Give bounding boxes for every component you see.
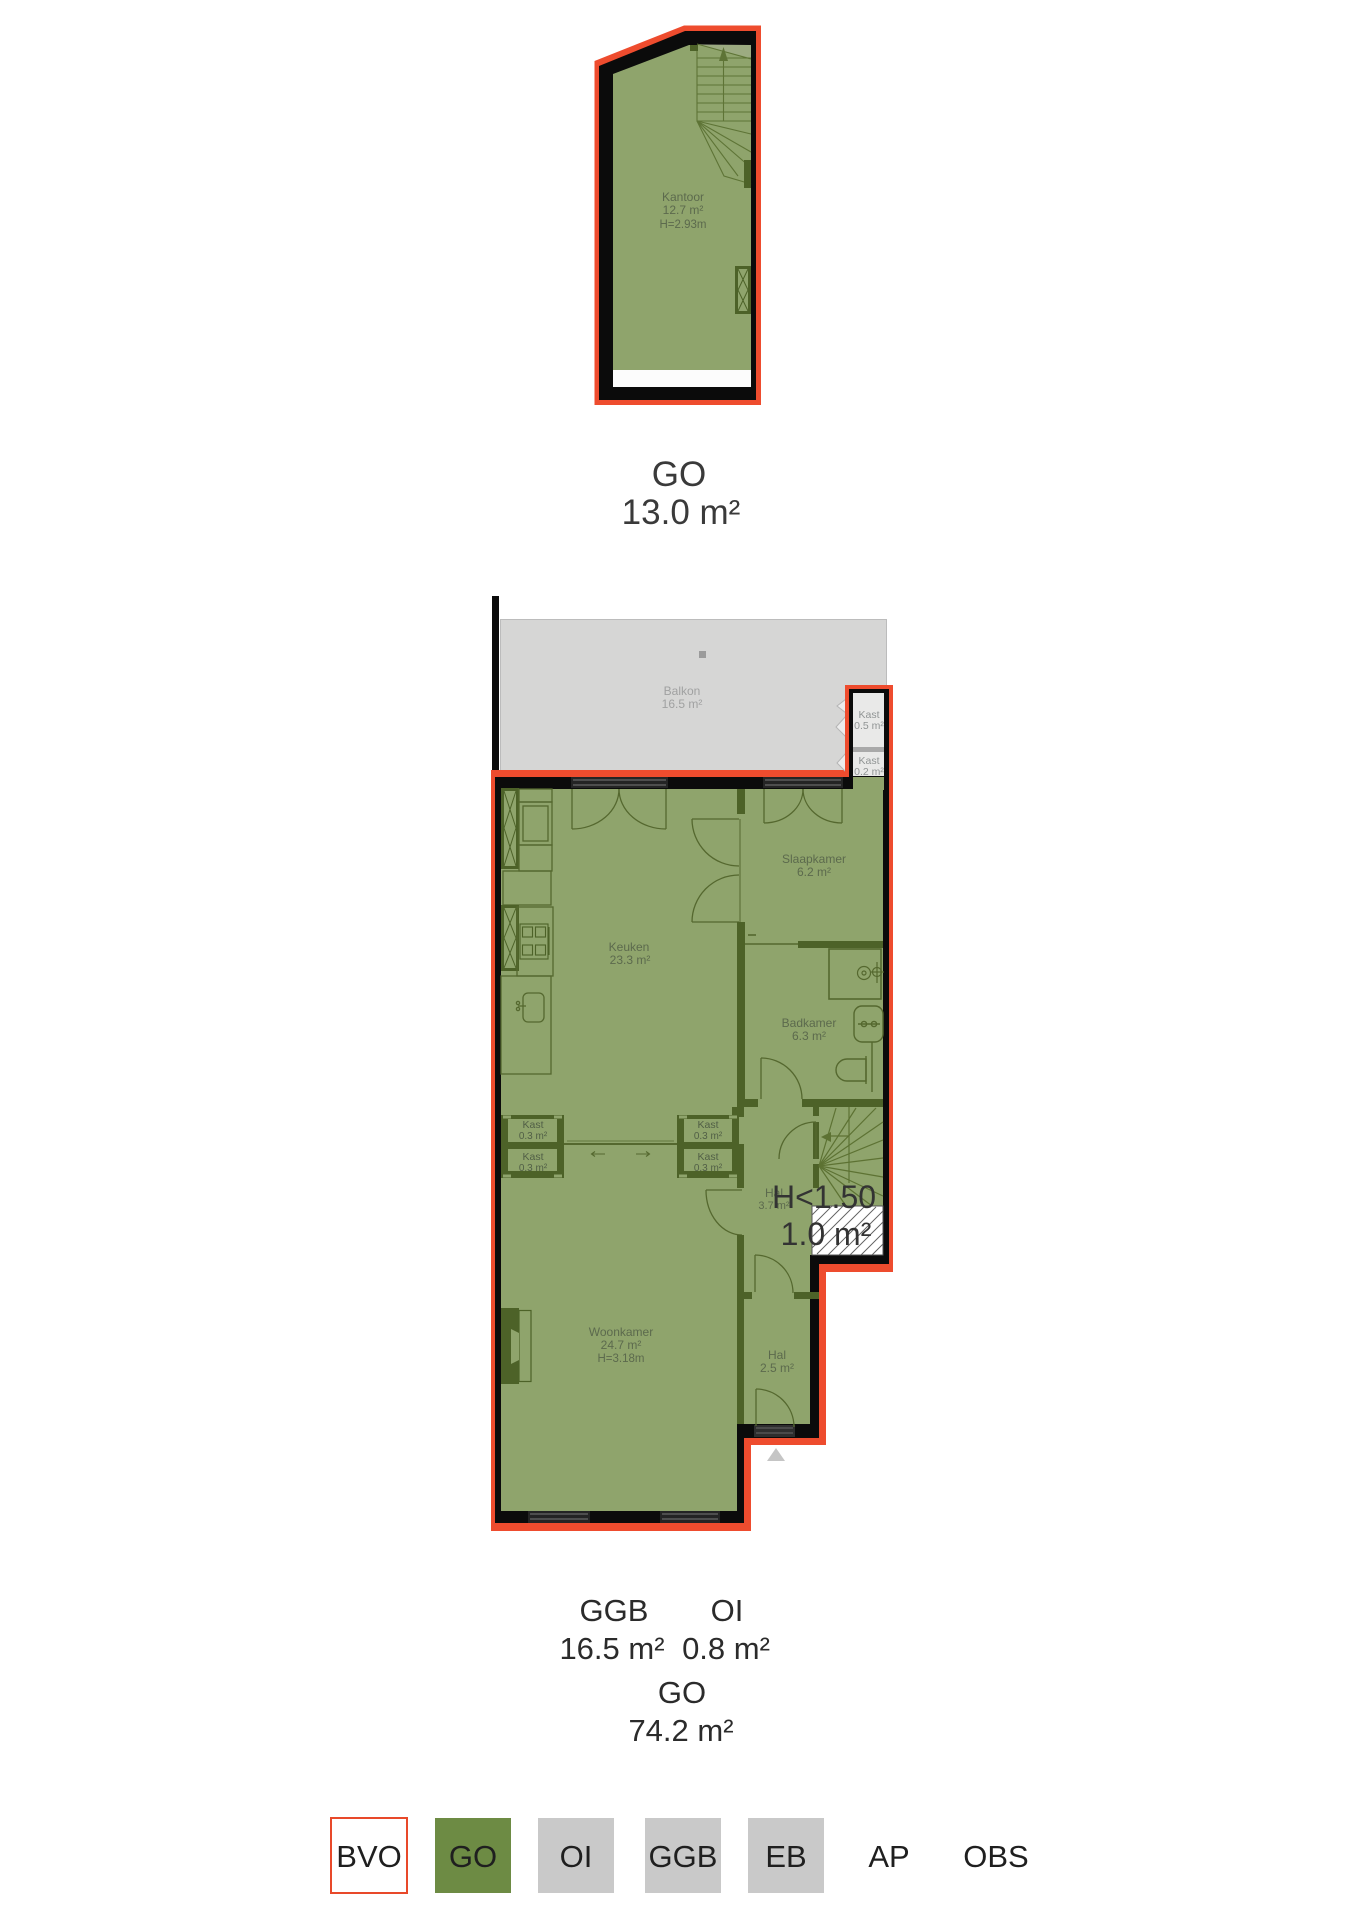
svg-text:OBS: OBS — [963, 1839, 1028, 1874]
svg-text:AP: AP — [868, 1839, 909, 1874]
svg-text:Kantoor: Kantoor — [662, 190, 704, 204]
svg-text:GO: GO — [658, 1675, 706, 1710]
svg-text:2.5 m²: 2.5 m² — [760, 1361, 794, 1375]
svg-text:Hal: Hal — [768, 1348, 786, 1362]
svg-text:Woonkamer: Woonkamer — [589, 1325, 653, 1339]
svg-text:Badkamer: Badkamer — [782, 1016, 837, 1030]
svg-text:GGB: GGB — [580, 1593, 649, 1628]
svg-text:Slaapkamer: Slaapkamer — [782, 852, 846, 866]
svg-text:6.2 m²: 6.2 m² — [797, 865, 831, 879]
svg-text:0.3 m²: 0.3 m² — [694, 1163, 723, 1174]
svg-text:GGB: GGB — [649, 1839, 718, 1874]
svg-text:H<1.50: H<1.50 — [772, 1179, 876, 1215]
svg-text:1.0 m²: 1.0 m² — [781, 1216, 872, 1252]
svg-text:16.5 m²: 16.5 m² — [559, 1631, 664, 1666]
svg-text:23.3 m²: 23.3 m² — [610, 953, 651, 967]
svg-text:74.2 m²: 74.2 m² — [628, 1713, 733, 1748]
svg-text:GO: GO — [449, 1839, 497, 1874]
svg-text:OI: OI — [560, 1839, 593, 1874]
svg-text:Balkon: Balkon — [664, 684, 701, 698]
svg-text:Kast: Kast — [522, 1151, 543, 1163]
svg-text:6.3 m²: 6.3 m² — [792, 1029, 826, 1043]
svg-text:Kast: Kast — [697, 1151, 718, 1163]
svg-text:0.3 m²: 0.3 m² — [519, 1163, 548, 1174]
svg-text:0.3 m²: 0.3 m² — [694, 1131, 723, 1142]
svg-text:BVO: BVO — [336, 1839, 401, 1874]
svg-text:24.7 m²: 24.7 m² — [601, 1338, 642, 1352]
svg-text:16.5 m²: 16.5 m² — [662, 697, 703, 711]
svg-text:GO: GO — [652, 455, 706, 494]
svg-text:0.2 m²: 0.2 m² — [854, 766, 884, 778]
svg-text:H=3.18m: H=3.18m — [598, 1353, 645, 1365]
svg-text:H=2.93m: H=2.93m — [660, 219, 707, 231]
svg-text:Keuken: Keuken — [609, 940, 650, 954]
svg-text:EB: EB — [765, 1839, 806, 1874]
svg-text:Kast: Kast — [697, 1119, 718, 1131]
svg-text:12.7 m²: 12.7 m² — [663, 203, 704, 217]
svg-text:13.0 m²: 13.0 m² — [622, 493, 741, 532]
svg-text:0.8 m²: 0.8 m² — [682, 1631, 770, 1666]
svg-text:OI: OI — [711, 1593, 744, 1628]
svg-text:Kast: Kast — [522, 1119, 543, 1131]
svg-text:0.5 m²: 0.5 m² — [854, 720, 884, 732]
svg-text:0.3 m²: 0.3 m² — [519, 1131, 548, 1142]
